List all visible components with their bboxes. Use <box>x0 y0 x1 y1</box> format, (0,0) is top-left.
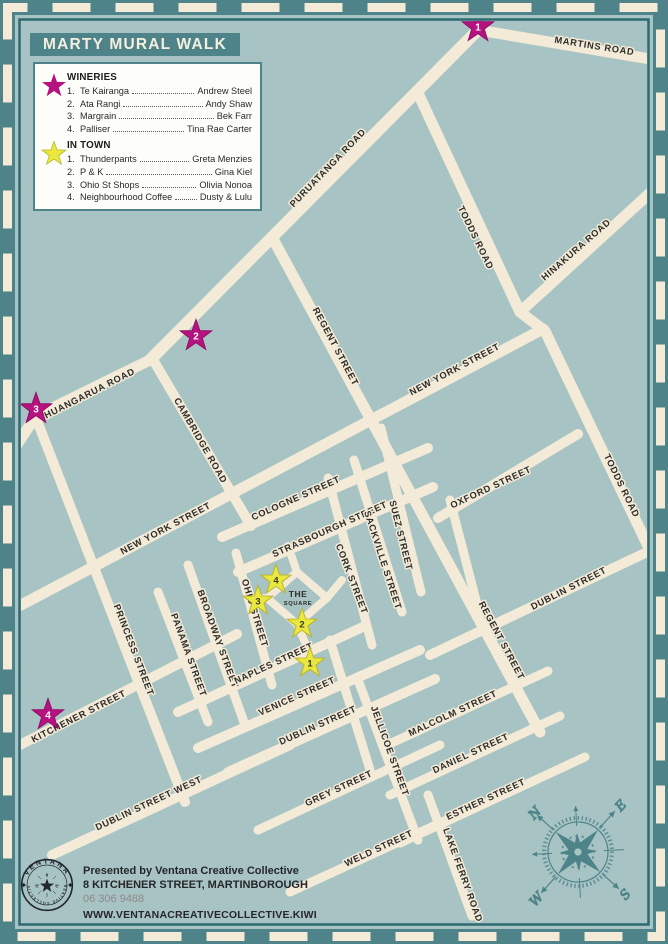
the-square-label: THE <box>289 589 308 599</box>
item-name: Margrain <box>80 110 116 123</box>
dotted-leader <box>113 131 184 132</box>
logo-star <box>40 878 54 891</box>
ventana-logo: VENTANA CREATIVE COLLECTIVE V C C <box>20 858 74 912</box>
the-square-label-2: SQUARE <box>284 601 312 607</box>
item-number: 2. <box>67 98 80 111</box>
dotted-leader <box>140 161 190 162</box>
item-artist: Greta Menzies <box>192 153 252 166</box>
item-name: Ata Rangi <box>80 98 120 111</box>
winery-star-2-number: 2 <box>193 332 199 343</box>
item-name: Te Kairanga <box>80 85 129 98</box>
item-name: P & K <box>80 166 103 179</box>
logo-letter-c1: C <box>36 884 39 889</box>
legend-row: 1. Te Kairanga Andrew Steel <box>67 85 252 98</box>
item-number: 1. <box>67 85 80 98</box>
winery-star-4-number: 4 <box>45 711 51 722</box>
item-name: Thunderpants <box>80 153 137 166</box>
item-name: Ohio St Shops <box>80 179 139 192</box>
footer: VENTANA CREATIVE COLLECTIVE V C C Presen… <box>20 858 317 922</box>
legend-row: 1. Thunderpants Greta Menzies <box>67 153 252 166</box>
footer-phone: 06 306 9488 <box>83 893 317 906</box>
poster-title: MARTY MURAL WALK <box>43 36 227 54</box>
winery-star-icon <box>40 71 67 135</box>
poster-title-bar: MARTY MURAL WALK <box>30 33 240 56</box>
footer-address: 8 KITCHENER STREET, MARTINBOROUGH <box>83 879 317 892</box>
footer-presented-by: Presented by Ventana Creative Collective <box>83 865 317 878</box>
item-artist: Tina Rae Carter <box>187 123 252 136</box>
logo-letter-v: V <box>46 873 49 878</box>
dotted-leader <box>132 93 194 94</box>
legend-box: WINERIES 1. Te Kairanga Andrew Steel 2. … <box>33 62 262 211</box>
item-artist: Olivia Nonoa <box>199 179 252 192</box>
item-artist: Dusty & Lulu <box>200 191 252 204</box>
item-name: Neighbourhood Coffee <box>80 191 172 204</box>
item-artist: Andrew Steel <box>197 85 252 98</box>
item-number: 4. <box>67 191 80 204</box>
town-star-1-number: 1 <box>307 658 313 669</box>
legend-row: 4. Palliser Tina Rae Carter <box>67 123 252 136</box>
item-number: 3. <box>67 110 80 123</box>
winery-star-1-number: 1 <box>475 23 481 34</box>
item-artist: Bek Farr <box>217 110 252 123</box>
item-number: 1. <box>67 153 80 166</box>
legend-row: 2. Ata Rangi Andy Shaw <box>67 98 252 111</box>
town-star-4-number: 4 <box>273 575 279 586</box>
item-number: 4. <box>67 123 80 136</box>
legend-row: 4. Neighbourhood Coffee Dusty & Lulu <box>67 191 252 204</box>
mural-walk-poster: MARTINS ROAD PURUATANGA ROAD TODDS ROAD … <box>0 0 668 944</box>
legend-row: 2. P & K Gina Kiel <box>67 166 252 179</box>
legend-wineries-heading: WINERIES <box>67 72 252 83</box>
legend-row: 3. Margrain Bek Farr <box>67 110 252 123</box>
dotted-leader <box>123 106 202 107</box>
item-number: 3. <box>67 179 80 192</box>
footer-website: WWW.VENTANACREATIVECOLLECTIVE.KIWI <box>83 909 317 922</box>
item-number: 2. <box>67 166 80 179</box>
dotted-leader <box>142 187 196 188</box>
town-star-icon <box>40 139 67 203</box>
town-star-2-number: 2 <box>299 619 304 630</box>
item-artist: Gina Kiel <box>215 166 252 179</box>
item-artist: Andy Shaw <box>206 98 252 111</box>
dotted-leader <box>106 174 211 175</box>
dotted-leader <box>119 118 214 119</box>
legend-row: 3. Ohio St Shops Olivia Nonoa <box>67 179 252 192</box>
winery-star-3-number: 3 <box>33 405 39 416</box>
logo-letter-c2: C <box>56 884 59 889</box>
legend-wineries-section: WINERIES 1. Te Kairanga Andrew Steel 2. … <box>40 71 252 135</box>
item-name: Palliser <box>80 123 110 136</box>
town-star-3-number: 3 <box>255 596 260 607</box>
legend-in-town-section: IN TOWN 1. Thunderpants Greta Menzies 2.… <box>40 139 252 203</box>
dotted-leader <box>175 199 197 200</box>
legend-in-town-heading: IN TOWN <box>67 140 252 151</box>
